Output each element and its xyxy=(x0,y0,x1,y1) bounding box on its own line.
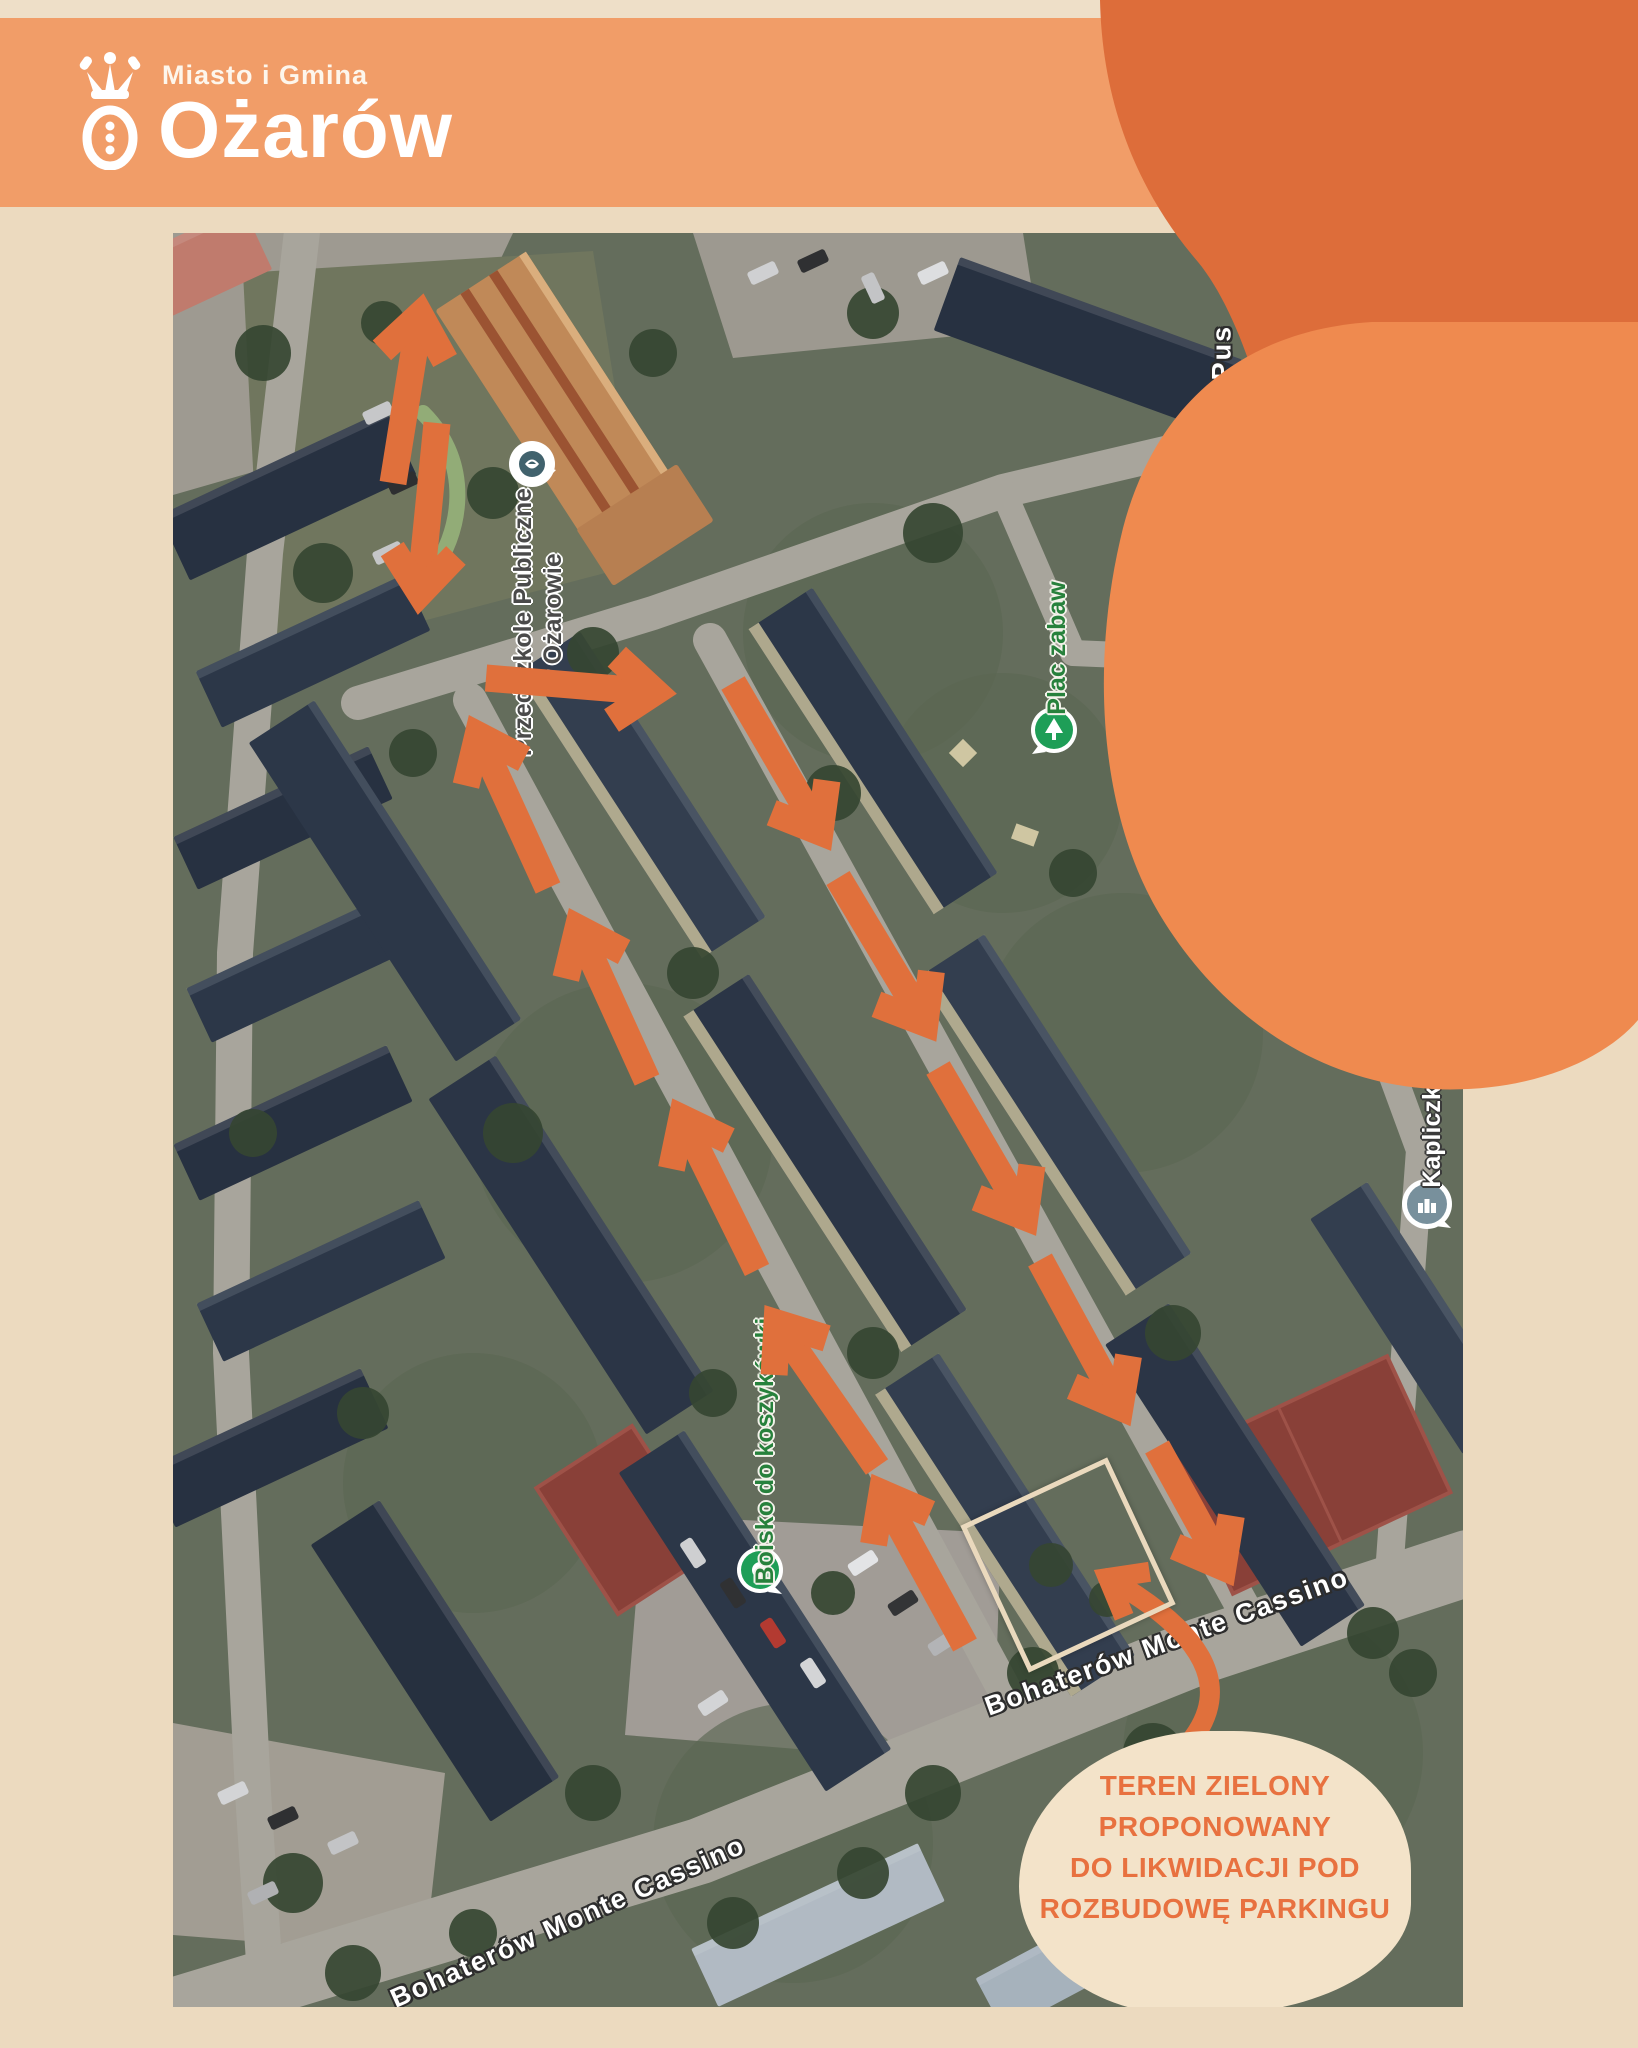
callout-text: TEREN ZIELONYPROPONOWANYDO LIKWIDACJI PO… xyxy=(1040,1765,1391,1929)
callout-text-line: DO LIKWIDACJI POD xyxy=(1040,1847,1391,1888)
satellite-map: Przedszkole Publicznew OżarowiePlac zaba… xyxy=(173,233,1463,2007)
top-strip xyxy=(0,0,1638,18)
callout-bubble: TEREN ZIELONYPROPONOWANYDO LIKWIDACJI PO… xyxy=(1019,1731,1411,2007)
page-title: Ożarów xyxy=(158,84,453,176)
town-crest-icon xyxy=(74,52,146,170)
callout-text-line: PROPONOWANY xyxy=(1040,1806,1391,1847)
header-banner: Miasto i Gmina Ożarów xyxy=(0,18,1638,207)
route-arrow xyxy=(777,1323,877,1467)
callout-text-line: TEREN ZIELONY xyxy=(1040,1765,1391,1806)
callout-text-line: ROZBUDOWĘ PARKINGU xyxy=(1040,1888,1391,1929)
page: Miasto i Gmina Ożarów Przedszkole Public… xyxy=(0,0,1638,2048)
